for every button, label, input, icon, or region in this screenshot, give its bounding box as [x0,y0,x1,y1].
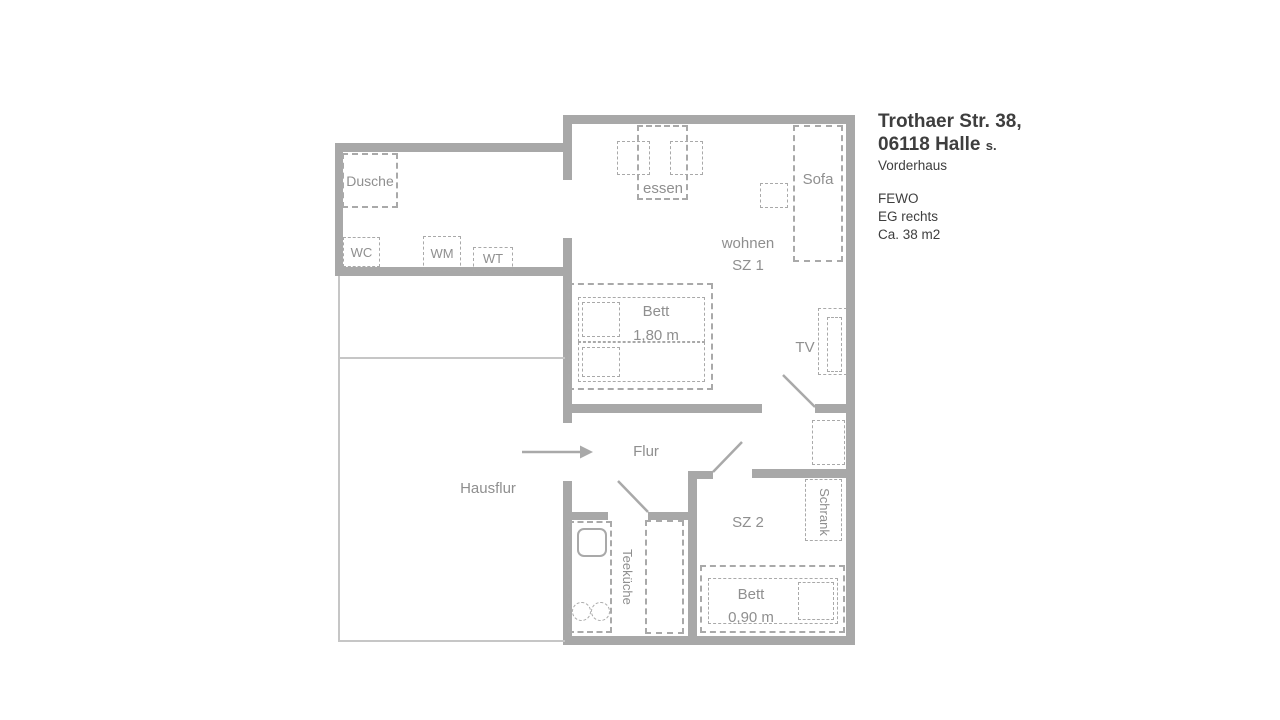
dining-label: essen [633,180,693,197]
bed1-size-label: 1,80 m [625,327,687,344]
hall-cabinet-box [812,420,845,465]
washbasin-label: WT [473,251,513,266]
address-line2-suffix: s. [986,138,997,153]
living-room-label-line1: wohnen [715,235,781,252]
bed1-pillow-bottom-box [582,347,620,377]
kitchen-counter-right-box [645,520,684,634]
address-line2: 06118 Halle s. [878,133,1022,157]
dining-chair-right-box [670,141,703,175]
bed1-label: Bett [630,303,682,320]
floor-label: EG rechts [878,208,1022,226]
kitchen-burner-right [591,602,610,621]
door-line-kitchenette [618,481,648,512]
bed1-pillow-top-box [582,302,620,337]
address-line1: Trothaer Str. 38, [878,110,1022,133]
kitchenette-label: Teeküche [619,532,635,622]
kitchen-sink [577,528,607,557]
building-label: Vorderhaus [878,157,1022,175]
tv-inner-box [827,317,842,372]
side-table-box [760,183,788,208]
wc-label: WC [343,245,380,260]
floor-plan: Dusche WC WM WT essen Sofa wohnen SZ 1 B… [0,0,1280,720]
bed2-pillow-box [798,582,834,620]
washing-machine-label: WM [423,246,461,261]
title-block: Trothaer Str. 38, 06118 Halle s. Vorderh… [878,110,1022,244]
sofa-box [793,125,843,262]
unit-label: FEWO [878,190,1022,208]
hall-label: Flur [624,443,668,460]
title-spacer [878,175,1022,190]
entrance-arrow-head [580,446,593,459]
kitchen-burner-left [572,602,591,621]
bedroom2-label: SZ 2 [727,514,769,531]
dining-chair-left-box [617,141,650,175]
area-label: Ca. 38 m2 [878,226,1022,244]
house-hall-label: Hausflur [457,480,519,497]
bed2-size-label: 0,90 m [722,609,780,626]
bed2-label: Bett [725,586,777,603]
door-line-bedroom2 [713,442,742,472]
wardrobe-label: Schrank [816,472,832,552]
tv-label: TV [793,339,817,356]
address-line2-main: 06118 Halle [878,134,980,155]
shower-label: Dusche [342,173,398,189]
sofa-label: Sofa [793,171,843,188]
living-room-label-line2: SZ 1 [715,257,781,274]
door-line-living [783,375,815,407]
